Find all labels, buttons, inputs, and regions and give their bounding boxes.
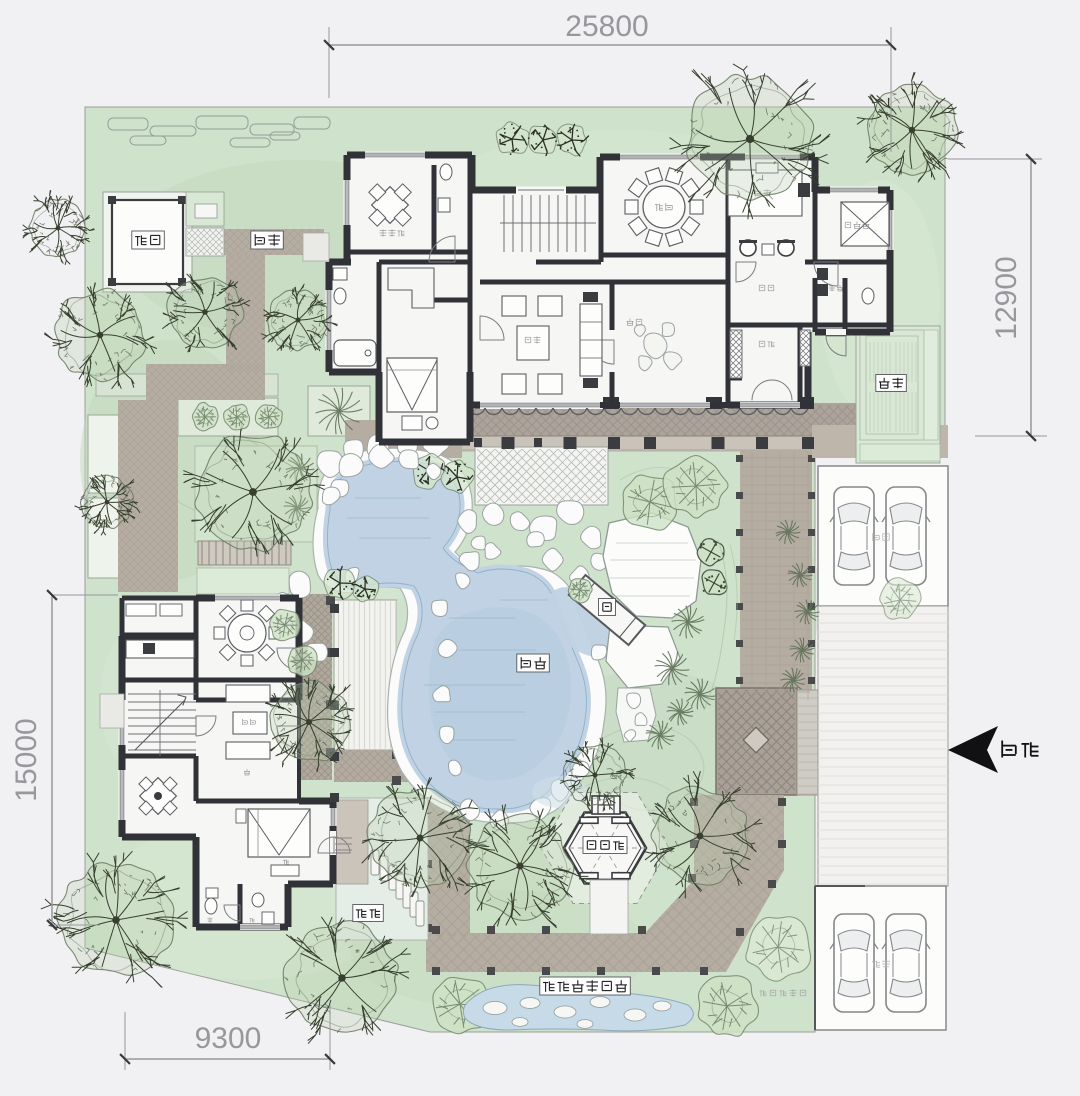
svg-text:9300: 9300 [195, 1022, 262, 1055]
svg-text:15000: 15000 [10, 718, 43, 801]
svg-text:25800: 25800 [565, 10, 648, 43]
svg-text:12900: 12900 [990, 256, 1023, 339]
